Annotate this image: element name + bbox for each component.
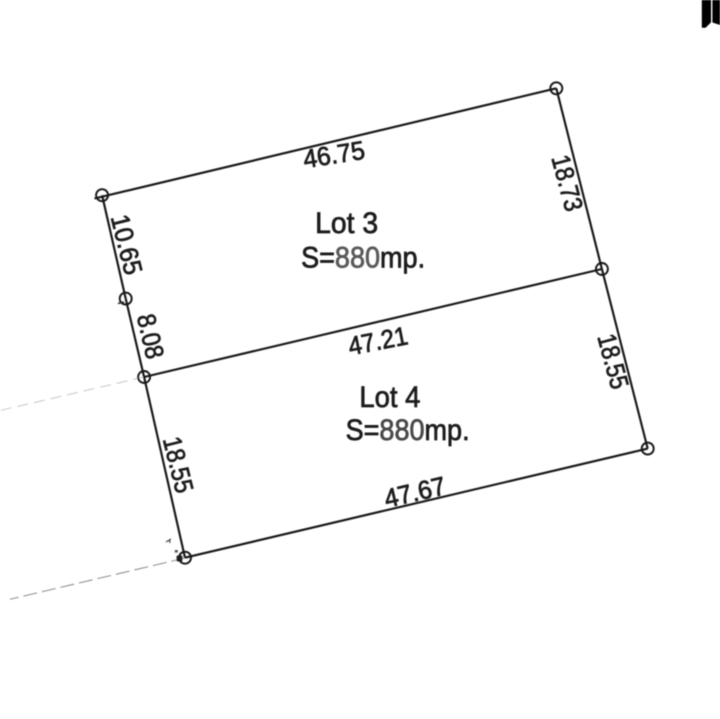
svg-text:S=880mp.: S=880mp. <box>301 241 425 274</box>
svg-text:Lot 3: Lot 3 <box>315 207 378 240</box>
svg-text:Lot 4: Lot 4 <box>359 381 420 414</box>
svg-text:S=880mp.: S=880mp. <box>346 414 470 447</box>
